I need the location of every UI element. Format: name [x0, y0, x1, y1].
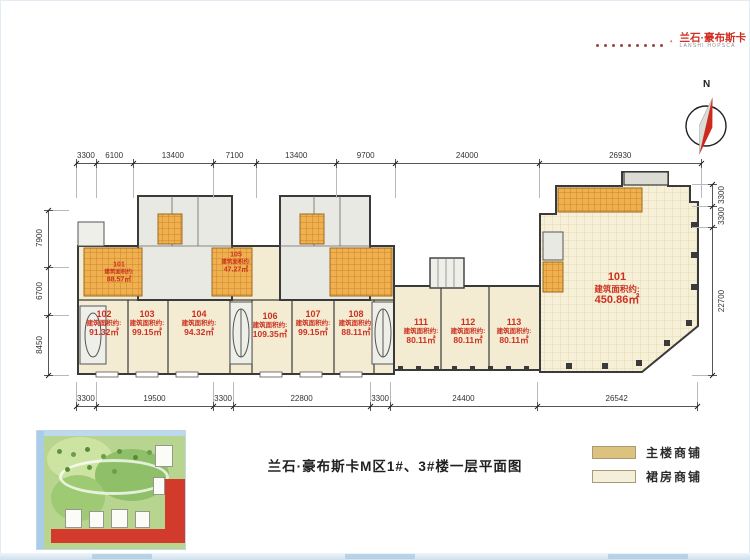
- unit-label-105-4: 105建筑面积约:47.27㎡: [221, 252, 250, 275]
- unit-label-101-0: 101建筑面积约:88.57㎡: [104, 262, 133, 285]
- unit-area-prefix: 建筑面积约:: [104, 270, 133, 276]
- dim-value: 3300: [360, 394, 400, 403]
- unit-number: 112: [451, 317, 486, 328]
- unit-area-value: 47.27㎡: [221, 266, 250, 274]
- unit-number: 103: [130, 309, 165, 320]
- unit-area-prefix: 建筑面积约:: [296, 319, 331, 327]
- siteplan-water-top: [37, 431, 185, 436]
- unit-area-prefix: 建筑面积约:: [130, 319, 165, 327]
- siteplan-building: [111, 509, 128, 528]
- unit-area-prefix: 建筑面积约:: [253, 321, 288, 329]
- legend-label: 裙房商铺: [646, 468, 702, 485]
- unit-area-value: 94.32㎡: [182, 327, 217, 337]
- unit-area-value: 88.57㎡: [104, 276, 133, 284]
- unit-label-104-3: 104建筑面积约:94.32㎡: [182, 309, 217, 337]
- unit-label-107-6: 107建筑面积约:99.15㎡: [296, 309, 331, 337]
- unit-number: 106: [253, 311, 288, 322]
- unit-label-108-7: 108建筑面积约:88.11㎡: [339, 309, 374, 337]
- unit-area-prefix: 建筑面积约:: [339, 319, 374, 327]
- siteplan-road-right: [165, 479, 185, 535]
- unit-area-prefix: 建筑面积约:: [594, 284, 639, 294]
- unit-area-value: 80.11㎡: [404, 335, 439, 345]
- dim-value: 3300: [203, 394, 243, 403]
- legend-label: 主楼商铺: [646, 444, 702, 461]
- dim-value: 19500: [135, 394, 175, 403]
- siteplan-trees: [57, 449, 62, 454]
- siteplan-building: [89, 511, 104, 528]
- unit-label-112-9: 112建筑面积约:80.11㎡: [451, 317, 486, 345]
- siteplan-building: [65, 509, 82, 528]
- unit-label-103-2: 103建筑面积约:99.15㎡: [130, 309, 165, 337]
- legend-swatch: [592, 470, 636, 483]
- dim-value: 26930: [600, 151, 640, 160]
- unit-number: 111: [404, 317, 439, 328]
- page-title: 兰石·豪布斯卡M区1#、3#楼一层平面图: [230, 455, 560, 475]
- dim-value: 8450: [35, 325, 45, 365]
- dim-value: 13400: [153, 151, 193, 160]
- unit-label-106-5: 106建筑面积约:109.35㎡: [253, 311, 288, 339]
- unit-label-101-11: 101建筑面积约:450.86㎡: [594, 271, 639, 307]
- unit-area-value: 80.11㎡: [497, 335, 532, 345]
- dim-value: 24000: [447, 151, 487, 160]
- dim-value: 26542: [597, 394, 637, 403]
- unit-area-prefix: 建筑面积约:: [182, 319, 217, 327]
- dim-value: 24400: [443, 394, 483, 403]
- unit-area-prefix: 建筑面积约:: [497, 327, 532, 335]
- dim-value: 22700: [717, 281, 727, 321]
- bottom-edge-mark: [608, 554, 688, 559]
- unit-number: 102: [87, 309, 122, 320]
- bottom-edge-mark: [92, 554, 152, 559]
- dim-value: 9700: [346, 151, 386, 160]
- unit-area-prefix: 建筑面积约:: [87, 319, 122, 327]
- unit-area-value: 80.11㎡: [451, 335, 486, 345]
- unit-area-value: 109.35㎡: [253, 329, 288, 339]
- siteplan-thumbnail: [36, 430, 186, 550]
- dim-value: 7900: [35, 218, 45, 258]
- unit-area-value: 99.15㎡: [130, 327, 165, 337]
- dim-value: 22800: [282, 394, 322, 403]
- dim-value: 6100: [94, 151, 134, 160]
- unit-area-value: 450.86㎡: [594, 294, 639, 307]
- unit-label-102-1: 102建筑面积约:91.32㎡: [87, 309, 122, 337]
- bottom-edge-mark: [345, 554, 415, 559]
- unit-area-value: 99.15㎡: [296, 327, 331, 337]
- unit-area-value: 91.32㎡: [87, 327, 122, 337]
- unit-number: 113: [497, 317, 532, 328]
- dim-value: 3300: [717, 196, 727, 236]
- unit-area-prefix: 建筑面积约:: [221, 260, 250, 266]
- legend-item-0: 主楼商铺: [592, 444, 702, 461]
- unit-label-111-8: 111建筑面积约:80.11㎡: [404, 317, 439, 345]
- unit-number: 107: [296, 309, 331, 320]
- siteplan-water-left: [37, 431, 44, 549]
- unit-label-113-10: 113建筑面积约:80.11㎡: [497, 317, 532, 345]
- legend-item-1: 裙房商铺: [592, 468, 702, 485]
- dim-value: 3300: [66, 394, 106, 403]
- unit-number: 101: [594, 271, 639, 284]
- unit-number: 104: [182, 309, 217, 320]
- unit-number: 108: [339, 309, 374, 320]
- dim-value: 6700: [35, 271, 45, 311]
- unit-area-prefix: 建筑面积约:: [404, 327, 439, 335]
- legend-swatch: [592, 446, 636, 459]
- dim-value: 7100: [215, 151, 255, 160]
- unit-area-value: 88.11㎡: [339, 327, 374, 337]
- unit-area-prefix: 建筑面积约:: [451, 327, 486, 335]
- legend: 主楼商铺裙房商铺: [592, 444, 702, 485]
- siteplan-building: [153, 477, 165, 495]
- siteplan-building: [155, 445, 173, 467]
- siteplan-building: [135, 511, 150, 528]
- dim-value: 13400: [276, 151, 316, 160]
